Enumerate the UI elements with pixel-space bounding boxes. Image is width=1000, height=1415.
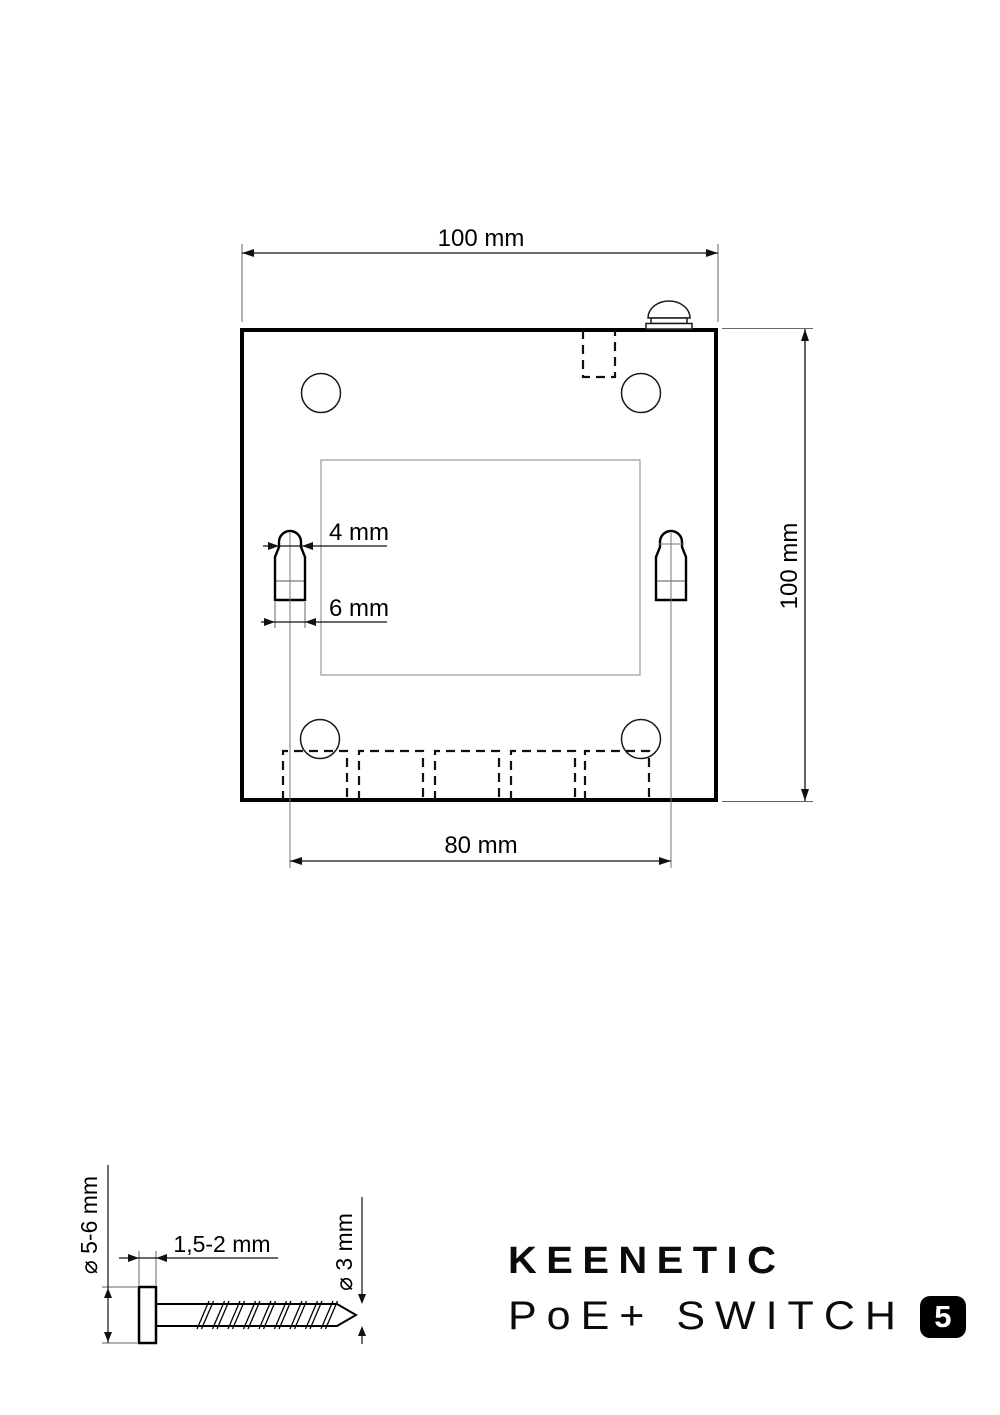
dimension-screw-head-diameter: ⌀ 5-6 mm — [76, 1165, 137, 1343]
dimension-height-label: 100 mm — [776, 523, 803, 610]
brand-block: KEENETIC PoE+ SWITCH 5 — [508, 1240, 968, 1283]
dimension-screw-shaft-label: ⌀ 3 mm — [331, 1213, 357, 1291]
dimension-height: 100 mm — [776, 329, 805, 801]
reset-button — [646, 301, 692, 329]
product-name: PoE+ SWITCH — [508, 1294, 906, 1339]
dimension-keyhole-slot-label: 4 mm — [329, 519, 389, 546]
device-back-panel — [242, 301, 716, 800]
reset-button-collar — [651, 318, 687, 324]
dimension-screw-clearance-label: 1,5-2 mm — [173, 1231, 270, 1257]
screw-shaft — [156, 1304, 356, 1326]
reset-button-dome — [648, 301, 690, 318]
installation-drawing-page: 100 mm 100 mm 80 mm 4 mm 6 mm — [0, 0, 1000, 1415]
screw-head — [139, 1287, 156, 1343]
mounting-screw-drawing: ⌀ 5-6 mm 1,5-2 mm ⌀ 3 mm — [76, 1165, 366, 1344]
foot-top-right — [622, 374, 661, 413]
dimension-keyhole-base-label: 6 mm — [329, 595, 389, 622]
dimension-screw-head-label: ⌀ 5-6 mm — [76, 1176, 102, 1274]
dimension-keyhole-spacing-label: 80 mm — [444, 832, 517, 859]
dimension-width-label: 100 mm — [438, 225, 525, 252]
dimension-keyhole-spacing: 80 mm — [290, 832, 671, 861]
port-count-badge: 5 — [920, 1296, 966, 1338]
brand-logo: KEENETIC — [508, 1240, 991, 1283]
product-row: PoE+ SWITCH 5 — [508, 1292, 966, 1341]
reset-button-base — [646, 324, 692, 330]
mounting-dimensions-diagram: 100 mm 100 mm 80 mm 4 mm 6 mm — [0, 0, 1000, 1415]
foot-top-left — [302, 374, 341, 413]
dimension-screw-clearance: 1,5-2 mm — [119, 1231, 278, 1285]
dimension-width: 100 mm — [242, 225, 718, 253]
